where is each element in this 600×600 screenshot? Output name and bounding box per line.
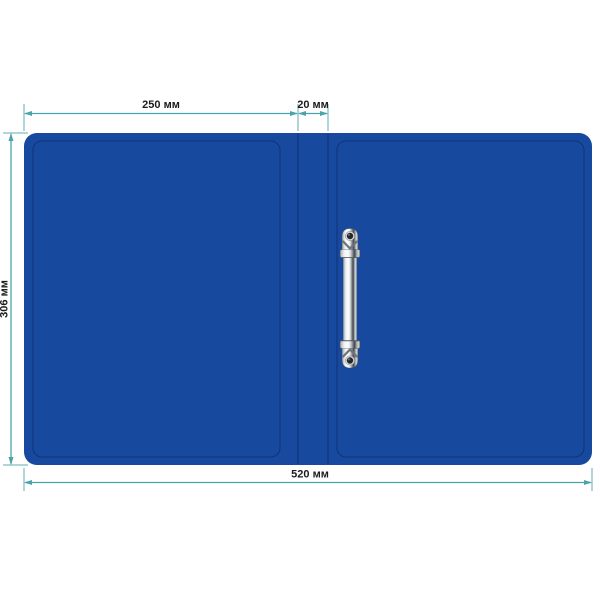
binding-bar	[343, 255, 357, 343]
product-dimension-diagram: 250 мм 20 мм 306 мм	[0, 0, 600, 600]
rivet-highlight-bottom	[348, 358, 350, 360]
dimension-label-height: 306 мм	[0, 280, 11, 318]
diagram-canvas: 250 мм 20 мм 306 мм	[0, 0, 600, 600]
arrowhead-left	[24, 111, 32, 116]
rivet-hole-bottom	[347, 357, 353, 363]
binder-body	[24, 133, 592, 465]
dimension-height: 306 мм	[0, 133, 28, 465]
arrowhead-left	[298, 111, 306, 116]
arrowhead-top	[9, 133, 14, 141]
arrowhead-left	[24, 480, 32, 485]
arrowhead-bottom	[9, 457, 14, 465]
arrowhead-right	[584, 480, 592, 485]
arrowhead-right	[320, 111, 328, 116]
dimension-label-total-width: 520 мм	[291, 469, 329, 481]
bottom-ring-collar	[340, 341, 360, 349]
dimension-label-front-cover-width: 250 мм	[142, 99, 180, 111]
dimension-total-width: 520 мм	[24, 468, 592, 491]
rivet-highlight-top	[348, 234, 350, 236]
dimension-front-cover-width: 250 мм	[24, 99, 298, 131]
dimension-label-spine-width: 20 мм	[297, 99, 329, 111]
top-ring-collar	[340, 250, 360, 258]
binder-illustration	[24, 133, 592, 465]
arrowhead-right	[290, 111, 298, 116]
rivet-hole-top	[347, 233, 353, 239]
dimension-spine-width: 20 мм	[297, 99, 329, 131]
